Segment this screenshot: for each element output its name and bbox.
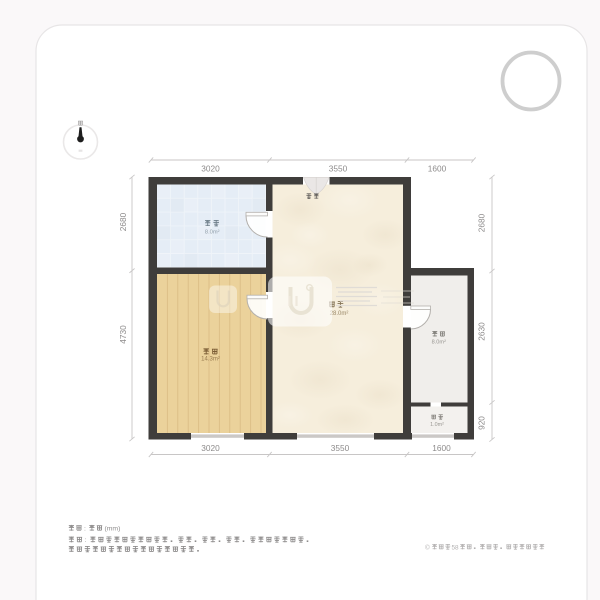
svg-text:1.0m²: 1.0m² [430,422,444,428]
svg-text::: : [84,526,86,533]
svg-text::: : [85,537,87,544]
svg-text:14.3m²: 14.3m² [201,356,220,362]
svg-text:8.0m²: 8.0m² [205,229,220,235]
svg-text:58: 58 [452,544,460,551]
svg-text:920: 920 [477,416,487,430]
svg-text:2630: 2630 [477,322,487,341]
svg-text:1600: 1600 [432,443,451,453]
svg-text:3550: 3550 [331,443,350,453]
svg-text:(mm): (mm) [105,526,121,533]
svg-text:1600: 1600 [428,163,447,173]
svg-text:28.0m²: 28.0m² [330,311,349,317]
svg-text:3550: 3550 [329,163,348,173]
svg-text:2680: 2680 [118,212,128,231]
svg-text:3020: 3020 [201,163,220,173]
svg-text:©: © [425,543,430,551]
svg-text:3020: 3020 [201,443,220,453]
svg-text:2680: 2680 [477,213,487,232]
svg-text:4730: 4730 [118,325,128,344]
svg-text:8.0m²: 8.0m² [432,340,446,346]
